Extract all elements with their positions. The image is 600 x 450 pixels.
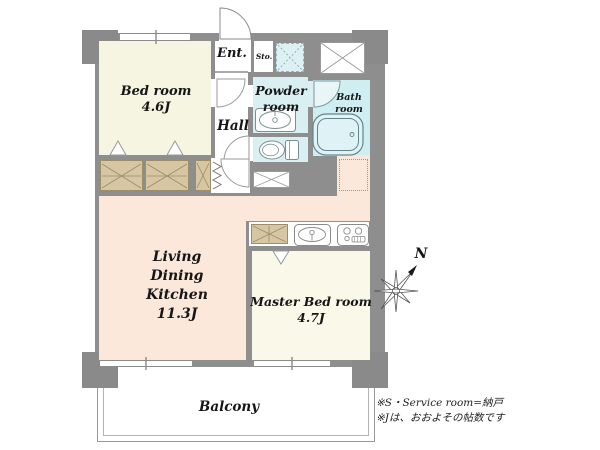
- stove-icon: [338, 225, 369, 246]
- master-bedroom-label: Master Bed room 4.7J: [250, 294, 372, 326]
- floor-access-hatch-cross: [254, 172, 289, 187]
- entrance-label: Ent.: [217, 46, 247, 62]
- toilet-icon: [260, 141, 299, 160]
- entrance-door-arc: [220, 8, 251, 39]
- compass-north-label: N: [415, 246, 428, 264]
- accordion-door-icon: [213, 162, 221, 189]
- bedroom-size: 4.6J: [121, 100, 192, 116]
- ldk-label: Living Dining Kitchen 11.3J: [125, 248, 229, 324]
- storage-label: Sto.: [256, 52, 272, 61]
- pipe-space-cross: [321, 43, 364, 73]
- footnote-tatami: ※Jは、おおよその帖数です: [376, 411, 586, 426]
- floor-plan: Bed room 4.6J Ent. Sto. Powder room Bath…: [0, 0, 600, 450]
- ldk-name: Living Dining Kitchen: [125, 248, 229, 305]
- balcony-label: Balcony: [199, 399, 259, 416]
- master-bedroom-name: Master Bed room: [250, 294, 372, 310]
- closet-door-triangle-icons: [110, 141, 289, 264]
- toilet-door-arc: [224, 136, 249, 161]
- footnote-service-room: ※S・Service room=納戸: [376, 396, 586, 411]
- plan-linework: [0, 0, 600, 450]
- bedroom-name: Bed room: [121, 84, 192, 100]
- hall-label: Hall: [217, 118, 249, 135]
- bathtub-icon: [313, 114, 363, 155]
- washing-machine-space-cross: [278, 45, 302, 70]
- bedroom-label: Bed room 4.6J: [121, 84, 192, 117]
- master-bedroom-size: 4.7J: [250, 310, 372, 326]
- bedroom-door-arc: [217, 79, 245, 107]
- powder-room-label: Powder room: [252, 83, 310, 114]
- closet-hatch-marks: [102, 163, 286, 242]
- kitchen-sink-icon: [295, 225, 331, 246]
- ldk-door-arc: [221, 159, 249, 187]
- compass-rose: [374, 265, 418, 312]
- bath-room-label: Bath room: [329, 92, 369, 116]
- ldk-size: 11.3J: [125, 305, 229, 324]
- footnotes: ※S・Service room=納戸 ※Jは、おおよその帖数です: [376, 396, 586, 426]
